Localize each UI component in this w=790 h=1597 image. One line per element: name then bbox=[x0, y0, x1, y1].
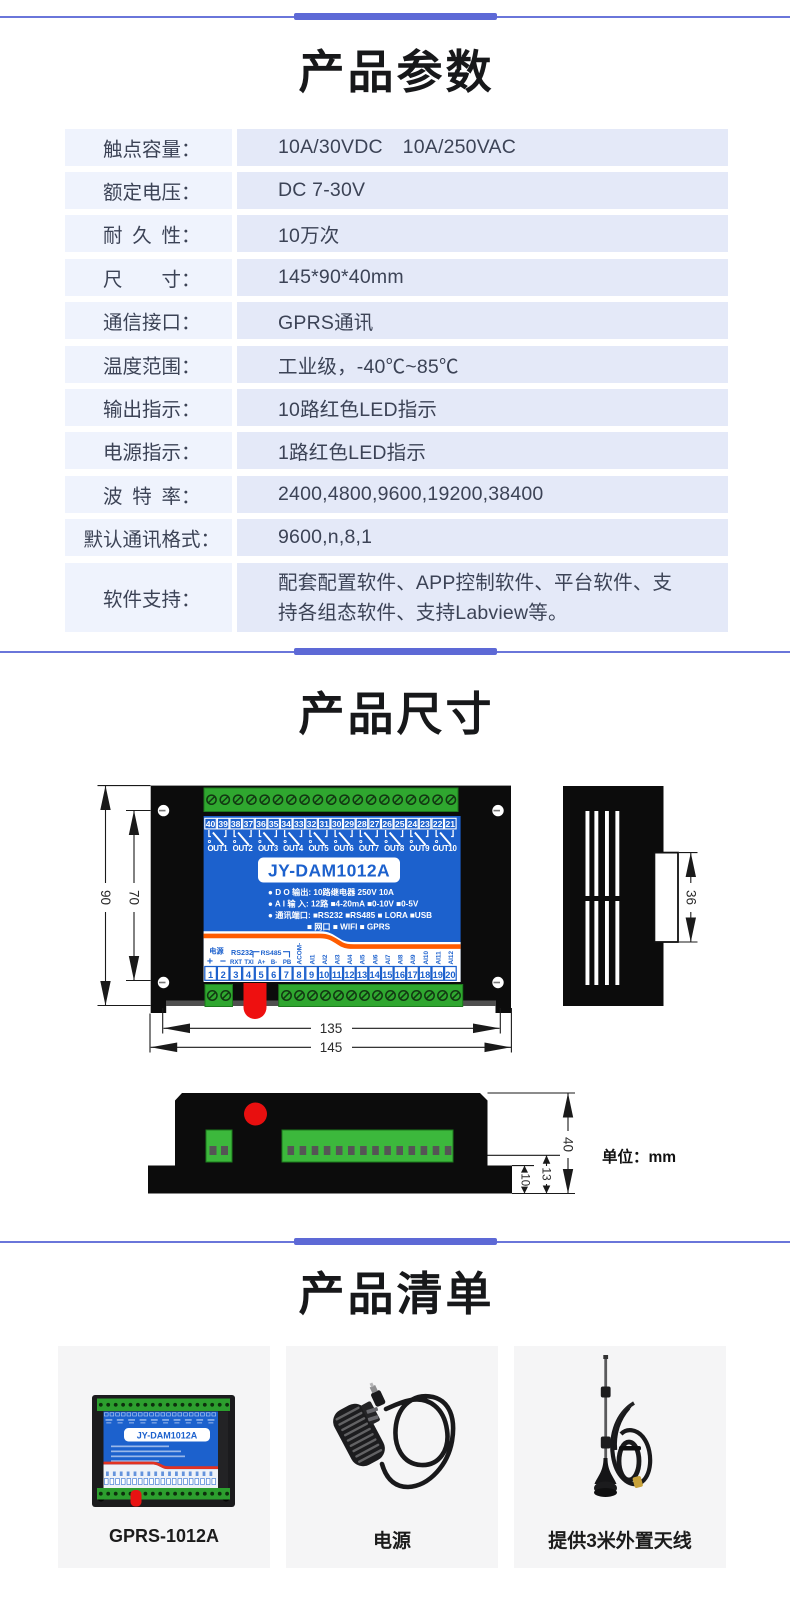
svg-text:4: 4 bbox=[246, 970, 252, 980]
svg-text:OUT9: OUT9 bbox=[409, 844, 430, 853]
svg-text:AI5: AI5 bbox=[360, 954, 367, 964]
svg-text:RS232: RS232 bbox=[231, 948, 253, 957]
svg-text:OUT8: OUT8 bbox=[384, 844, 405, 853]
svg-text:PB: PB bbox=[283, 960, 292, 966]
svg-text:OUT7: OUT7 bbox=[359, 844, 380, 853]
svg-text:8: 8 bbox=[296, 970, 301, 980]
svg-text:AI8: AI8 bbox=[398, 954, 405, 964]
svg-text:OUT4: OUT4 bbox=[283, 844, 304, 853]
svg-text:36: 36 bbox=[683, 890, 698, 905]
svg-text:28: 28 bbox=[357, 819, 367, 829]
svg-text:32: 32 bbox=[307, 819, 317, 829]
svg-text:AI2: AI2 bbox=[322, 954, 329, 964]
svg-text:35: 35 bbox=[269, 819, 279, 829]
svg-text:40: 40 bbox=[206, 819, 216, 829]
svg-text:电源: 电源 bbox=[209, 947, 224, 956]
svg-text:RXT: RXT bbox=[230, 960, 242, 966]
svg-text:TXI: TXI bbox=[244, 960, 254, 966]
svg-text:12: 12 bbox=[344, 970, 354, 980]
svg-text:AI9: AI9 bbox=[410, 954, 417, 964]
svg-text:145: 145 bbox=[320, 1040, 343, 1055]
svg-text:OUT5: OUT5 bbox=[308, 844, 329, 853]
svg-text:AI1: AI1 bbox=[309, 954, 316, 964]
svg-text:25: 25 bbox=[395, 819, 405, 829]
svg-text:11: 11 bbox=[332, 970, 342, 980]
svg-text:13: 13 bbox=[357, 970, 367, 980]
svg-text:OUT1: OUT1 bbox=[207, 844, 228, 853]
svg-text:40: 40 bbox=[561, 1137, 576, 1152]
svg-text:单位：mm: 单位：mm bbox=[602, 1147, 676, 1166]
svg-text:AI11: AI11 bbox=[436, 951, 443, 965]
svg-text:39: 39 bbox=[218, 819, 228, 829]
svg-text:34: 34 bbox=[281, 819, 291, 829]
svg-text:21: 21 bbox=[446, 819, 456, 829]
svg-text:17: 17 bbox=[407, 970, 417, 980]
svg-text:22: 22 bbox=[433, 819, 443, 829]
svg-text:3: 3 bbox=[233, 970, 238, 980]
svg-text:B-: B- bbox=[271, 960, 277, 966]
svg-text:5: 5 bbox=[259, 970, 264, 980]
svg-text:135: 135 bbox=[320, 1021, 343, 1036]
svg-text:JY-DAM1012A: JY-DAM1012A bbox=[137, 1430, 198, 1440]
svg-text:■ 网口 ■ WIFI ■ GPRS: ■ 网口 ■ WIFI ■ GPRS bbox=[307, 923, 391, 932]
svg-text:90: 90 bbox=[98, 890, 113, 905]
svg-text:● 通讯端口: ■RS232 ■RS485 ■ LORA: ● 通讯端口: ■RS232 ■RS485 ■ LORA ■USB bbox=[268, 910, 432, 920]
svg-text:14: 14 bbox=[370, 970, 381, 980]
svg-text:9: 9 bbox=[309, 970, 314, 980]
svg-text:AI3: AI3 bbox=[335, 954, 342, 964]
svg-text:20: 20 bbox=[445, 970, 455, 980]
svg-text:10: 10 bbox=[519, 1173, 531, 1186]
svg-text:70: 70 bbox=[127, 890, 142, 905]
svg-text:OUT10: OUT10 bbox=[433, 844, 458, 853]
svg-text:29: 29 bbox=[345, 819, 355, 829]
svg-text:2: 2 bbox=[221, 970, 226, 980]
svg-text:OUT3: OUT3 bbox=[258, 844, 279, 853]
svg-text:37: 37 bbox=[244, 819, 254, 829]
svg-text:RS485: RS485 bbox=[261, 950, 282, 957]
svg-text:6: 6 bbox=[271, 970, 276, 980]
svg-text:AI4: AI4 bbox=[347, 954, 354, 964]
svg-text:24: 24 bbox=[408, 819, 418, 829]
svg-text:38: 38 bbox=[231, 819, 241, 829]
svg-text:1: 1 bbox=[208, 970, 213, 980]
svg-text:27: 27 bbox=[370, 819, 380, 829]
svg-text:33: 33 bbox=[294, 819, 304, 829]
svg-text:AI12: AI12 bbox=[448, 951, 455, 965]
svg-text:ACOM-: ACOM- bbox=[297, 943, 304, 965]
svg-text:OUT2: OUT2 bbox=[233, 844, 254, 853]
svg-text:23: 23 bbox=[420, 819, 430, 829]
svg-text:26: 26 bbox=[382, 819, 392, 829]
svg-text:AI10: AI10 bbox=[423, 951, 430, 965]
svg-text:36: 36 bbox=[256, 819, 266, 829]
svg-text:13: 13 bbox=[540, 1167, 554, 1181]
svg-text:16: 16 bbox=[395, 970, 405, 980]
svg-text:10: 10 bbox=[319, 970, 329, 980]
svg-text:OUT6: OUT6 bbox=[334, 844, 355, 853]
svg-text:30: 30 bbox=[332, 819, 342, 829]
svg-text:AI6: AI6 bbox=[372, 954, 379, 964]
svg-text:15: 15 bbox=[382, 970, 392, 980]
svg-text:AI7: AI7 bbox=[385, 954, 392, 964]
svg-text:● D O 输出: 10路继电器 250V 10A: ● D O 输出: 10路继电器 250V 10A bbox=[268, 887, 394, 897]
svg-text:31: 31 bbox=[319, 819, 329, 829]
svg-text:A+: A+ bbox=[258, 960, 266, 966]
svg-text:18: 18 bbox=[420, 970, 430, 980]
svg-text:−: − bbox=[220, 956, 226, 968]
svg-text:19: 19 bbox=[433, 970, 443, 980]
svg-text:● A I 输 入: 12路 ■4-20mA ■0-10V: ● A I 输 入: 12路 ■4-20mA ■0-10V ■0-5V bbox=[268, 899, 419, 909]
svg-text:JY-DAM1012A: JY-DAM1012A bbox=[268, 861, 390, 881]
svg-text:+: + bbox=[207, 956, 213, 968]
svg-text:7: 7 bbox=[284, 970, 289, 980]
